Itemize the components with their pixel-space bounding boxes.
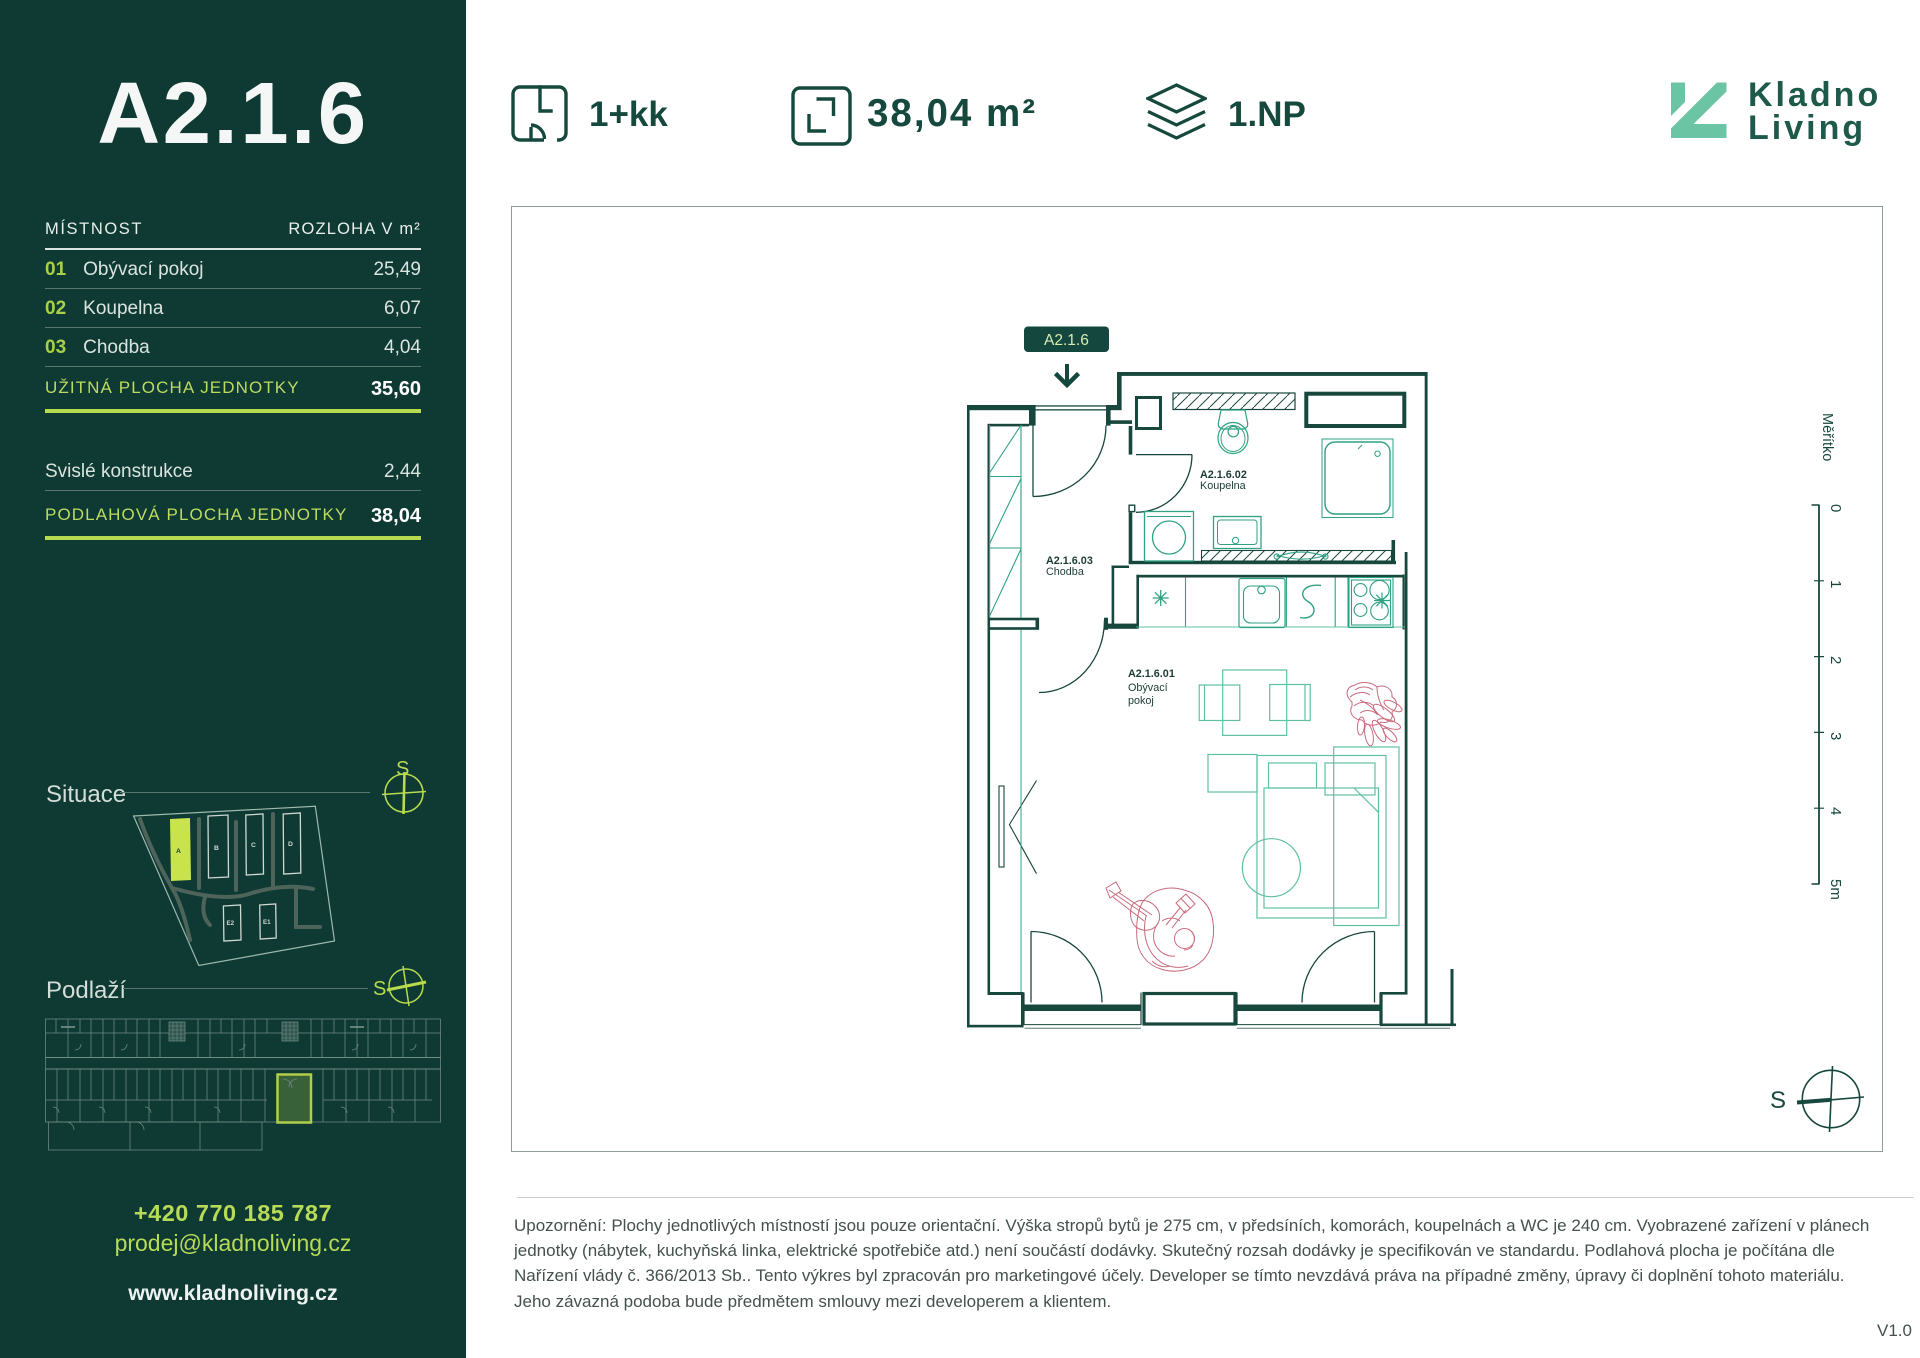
svg-text:4: 4 xyxy=(1827,807,1844,815)
svg-text:Měřítko: Měřítko xyxy=(1819,413,1835,461)
svg-text:A2.1.6: A2.1.6 xyxy=(1044,332,1089,349)
svg-text:Obývací: Obývací xyxy=(1128,682,1168,694)
svg-text:1: 1 xyxy=(1827,580,1844,588)
svg-text:pokoj: pokoj xyxy=(1128,695,1154,707)
svg-text:5m: 5m xyxy=(1827,879,1844,900)
svg-text:3: 3 xyxy=(1827,732,1844,740)
svg-text:2: 2 xyxy=(1827,656,1844,664)
svg-text:Chodba: Chodba xyxy=(1046,566,1084,578)
svg-text:A2.1.6.01: A2.1.6.01 xyxy=(1128,668,1175,680)
svg-text:Koupelna: Koupelna xyxy=(1200,480,1246,492)
svg-text:0: 0 xyxy=(1827,504,1844,512)
svg-text:S: S xyxy=(1770,1087,1786,1114)
